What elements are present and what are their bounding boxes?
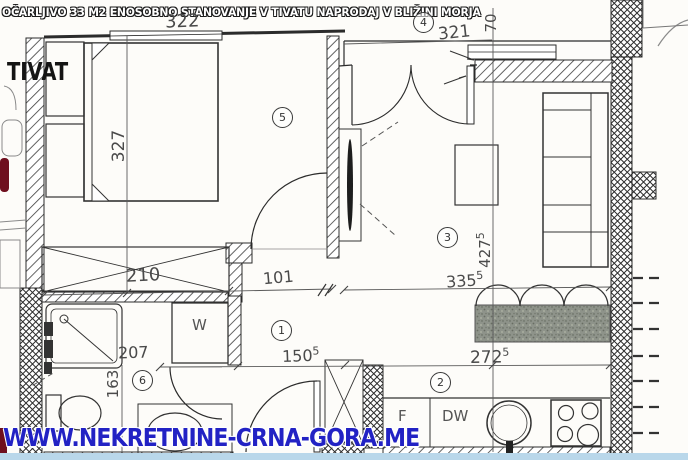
right-outer-wall (611, 0, 632, 455)
balcony-wall (475, 60, 612, 82)
page-corner-curve (658, 20, 688, 46)
room-number-kitchen: 2 (430, 372, 451, 393)
room-number-bathroom: 6 (132, 370, 153, 391)
closet-wall (228, 296, 241, 365)
dishwasher-label: DW (442, 407, 468, 425)
listing-title-banner: OČARLJIVO 33 M2 ENOSOBNO STANOVANJE V TI… (2, 5, 481, 19)
dim-base: 427 (476, 239, 494, 268)
plumbing-marks (44, 322, 53, 374)
bedroom-living-wall (327, 36, 339, 258)
floor-plan-scan: OČARLJIVO 33 M2 ENOSOBNO STANOVANJE V TI… (0, 0, 688, 460)
dim-base: 335 (445, 271, 477, 292)
wardrobe-label: W (192, 316, 207, 334)
red-stamp-mark (0, 158, 9, 192)
dim-base: 272 (470, 347, 503, 368)
mirror-cabinet (339, 129, 361, 241)
scan-edge-strip (0, 453, 688, 460)
fridge-label: F (398, 407, 407, 425)
dim-sup: 5 (502, 346, 509, 359)
dim-sup: 5 (476, 269, 484, 282)
bedroom-hall-wall (42, 291, 228, 302)
dim-hall-opening: 101 (262, 267, 294, 289)
room-number-bedroom: 5 (272, 107, 293, 128)
room-number-balcony: 4 (413, 12, 434, 33)
pillow-fold-bottom (92, 184, 109, 201)
dim-sup: 5 (312, 344, 319, 357)
side-table (455, 145, 498, 205)
dim-wardrobe-width: 210 (125, 264, 160, 287)
balcony-door-right-leaf (467, 66, 474, 124)
dim-sup: 5 (474, 232, 487, 239)
bed (84, 43, 218, 201)
agency-watermark: WWW.NEKRETNINE-CRNA-GORA.ME (3, 423, 419, 452)
nightstand-bottom (46, 124, 84, 197)
dim-hall-width: 1505 (282, 344, 320, 366)
room-number-living: 3 (437, 227, 458, 248)
door-jamb-block (226, 243, 252, 263)
bedroom-door (251, 173, 327, 249)
dim-bedroom-width: 322 (165, 10, 200, 32)
balcony-railing-dashes (633, 278, 659, 433)
swing-direction-dashes (360, 122, 398, 236)
pillow-fold-top (92, 43, 109, 60)
dim-bath-length: 163 (104, 363, 122, 405)
dining-table (475, 305, 610, 342)
dim-base: 150 (282, 346, 313, 366)
dim-living-length: 4275 (474, 226, 494, 274)
shower (46, 304, 122, 368)
room-number-hall: 1 (271, 320, 292, 341)
dim-bath-width: 207 (118, 342, 149, 362)
bathroom-door (170, 367, 222, 419)
dim-living-width: 3355 (445, 269, 484, 292)
dim-kitchen-width: 2725 (470, 346, 510, 368)
right-wall-pier (632, 172, 656, 199)
dim-balcony-depth: 70 (482, 8, 500, 38)
location-label: TIVAT (7, 57, 68, 86)
dim-bedroom-length: 327 (109, 123, 129, 169)
dim-balcony-width: 321 (437, 21, 471, 44)
stove (551, 400, 601, 446)
sofa (543, 93, 608, 267)
